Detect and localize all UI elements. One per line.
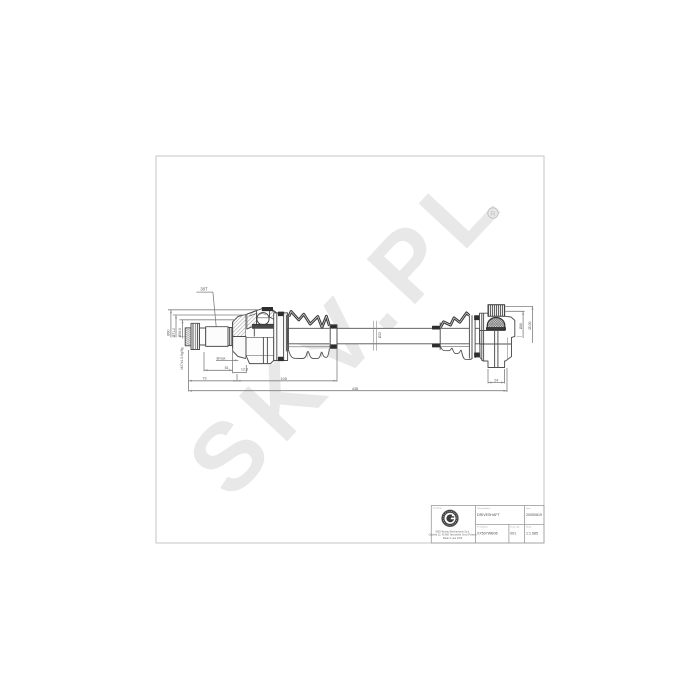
svg-text:Title (product):: Title (product): — [477, 507, 491, 510]
svg-text:438: 438 — [352, 387, 358, 391]
svg-text:73: 73 — [202, 376, 206, 380]
svg-text:Ø90: Ø90 — [167, 329, 171, 336]
svg-text:PT Number:: PT Number: — [477, 526, 489, 529]
svg-text:105: 105 — [281, 377, 287, 381]
svg-text:Ø100: Ø100 — [528, 321, 532, 329]
svg-text:XX507WB06: XX507WB06 — [477, 532, 498, 536]
svg-text:Date:: Date: — [526, 507, 531, 510]
svg-text:DRIVESHAFT: DRIVESHAFT — [477, 513, 501, 517]
svg-text:Ø22: Ø22 — [378, 332, 382, 338]
svg-text:24: 24 — [494, 378, 498, 382]
svg-text:8max: 8max — [216, 356, 225, 360]
svg-text:R: R — [490, 209, 496, 218]
svg-text:Drawn by:: Drawn by: — [510, 526, 520, 529]
svg-text:001: 001 — [510, 532, 516, 536]
svg-text:Opolska 22, 42-600 Tarnowskie: Opolska 22, 42-600 Tarnowskie Gory (Pola… — [429, 534, 477, 537]
svg-text:Made in year 2019: Made in year 2019 — [443, 537, 463, 540]
svg-text:OMG Wyroby Mechaniczne Sp.k.: OMG Wyroby Mechaniczne Sp.k. — [435, 530, 470, 533]
svg-text:Ø58.6: Ø58.6 — [178, 328, 182, 337]
svg-text:20050819: 20050819 — [526, 513, 542, 517]
svg-text:12.3: 12.3 — [241, 367, 248, 371]
svg-text:Ø88: Ø88 — [519, 323, 523, 329]
svg-text:51: 51 — [225, 366, 229, 370]
svg-text:Ø71.2: Ø71.2 — [172, 328, 176, 337]
svg-text:M27x1.5-6g/9g: M27x1.5-6g/9g — [180, 347, 184, 369]
svg-text:1:1.585: 1:1.585 — [526, 532, 538, 536]
svg-text:Scale:: Scale: — [526, 527, 532, 529]
svg-text:Company:: Company: — [433, 508, 443, 510]
svg-text:30T: 30T — [200, 287, 208, 292]
